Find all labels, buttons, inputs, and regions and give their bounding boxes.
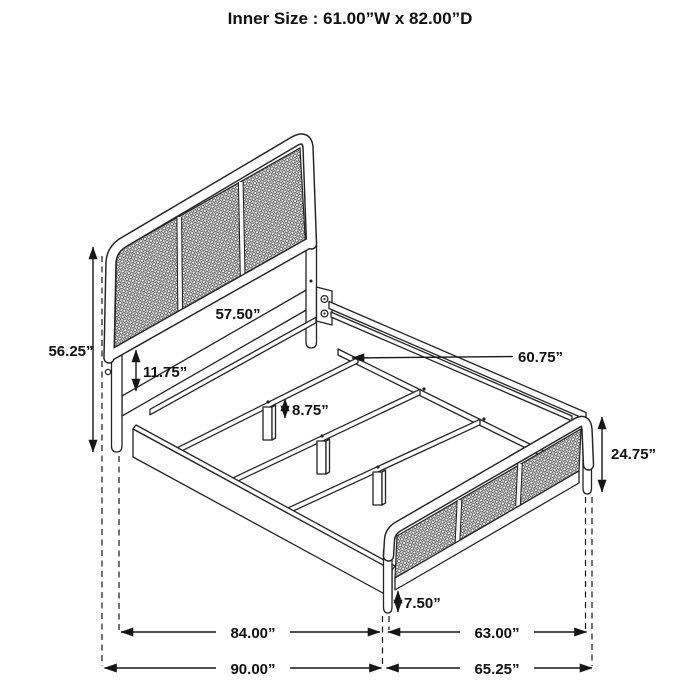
near-side-rail: [133, 429, 392, 598]
screw-dot: [422, 387, 425, 390]
dim-rail-length-label: 60.75”: [518, 349, 563, 366]
dim-overall-length-label: 90.00”: [230, 661, 275, 678]
dim-footboard-height-label: 24.75”: [611, 446, 656, 463]
screw-dot: [310, 280, 313, 283]
near-side-rail-top: [133, 425, 395, 570]
dim-inner-length-label: 84.00”: [230, 625, 275, 642]
headboard-far-leg: [306, 242, 317, 348]
screw-dot: [482, 417, 485, 420]
page-title: Inner Size : 61.00”W x 82.00”D: [228, 9, 473, 28]
bed-base: [133, 302, 586, 599]
dim-headboard-panel-width-label: 57.50”: [215, 306, 260, 323]
diagram-canvas: 56.25” 57.50” 11.75” 60.75” 8.75” 24.75”…: [0, 0, 700, 700]
dim-panel-drop-label: 11.75”: [143, 364, 187, 381]
bed-dimension-diagram: 56.25” 57.50” 11.75” 60.75” 8.75” 24.75”…: [0, 0, 700, 700]
dim-headboard-height-label: 56.25”: [48, 343, 93, 360]
dim-rail-length-leader: [352, 357, 513, 359]
dim-footboard-leg-label: 7.50”: [404, 595, 441, 612]
dim-center-leg-label: 8.75”: [292, 402, 329, 419]
dim-overall-width-label: 65.25”: [474, 661, 519, 678]
dim-footboard-inner-width-label: 63.00”: [474, 625, 519, 642]
leg-peg: [105, 369, 110, 374]
